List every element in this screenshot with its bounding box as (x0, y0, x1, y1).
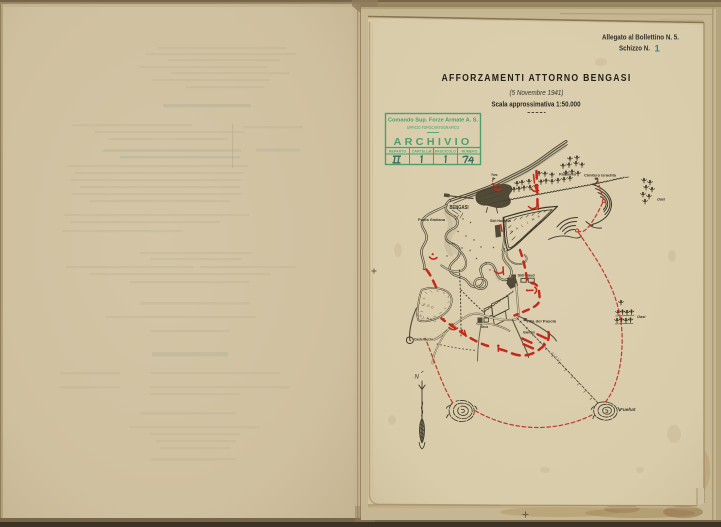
svg-text:Comando Sup. Forze Armate A. S: Comando Sup. Forze Armate A. S. (388, 118, 478, 124)
svg-text:UFFICIO TOPOCARTOGRAFICO: UFFICIO TOPOCARTOGRAFICO (407, 125, 460, 130)
svg-text:AFFORZAMENTI ATTORNO BENGASI: AFFORZAMENTI ATTORNO BENGASI (442, 73, 632, 84)
svg-text:G: G (427, 304, 430, 308)
svg-text:Fuehat: Fuehat (620, 407, 636, 412)
svg-text:Scala approssimativa 1:50.000: Scala approssimativa 1:50.000 (492, 100, 581, 109)
svg-text:O: O (431, 306, 434, 310)
svg-text:O: O (434, 319, 437, 323)
svg-text:Giardini: Giardini (523, 331, 535, 335)
svg-text:N: N (415, 375, 420, 381)
svg-text:L: L (419, 301, 421, 305)
svg-text:T: T (430, 318, 432, 322)
svg-text:Oasi: Oasi (637, 315, 646, 319)
svg-text:Faro: Faro (492, 173, 498, 177)
svg-text:NUMERO: NUMERO (462, 150, 478, 154)
svg-text:Villa del Pascià: Villa del Pascià (526, 320, 557, 324)
svg-text:FASCICOLO: FASCICOLO (435, 150, 456, 154)
svg-text:Sidi Hussein: Sidi Hussein (490, 219, 512, 223)
svg-text:(5 Novembre 1941): (5 Novembre 1941) (510, 88, 564, 97)
svg-text:Punta Giuliana: Punta Giuliana (418, 218, 446, 222)
svg-text:Cimitero israelita: Cimitero israelita (584, 173, 616, 177)
svg-text:Schizzo N.: Schizzo N. (619, 44, 650, 53)
svg-text:L: L (423, 315, 425, 319)
svg-text:ARCHIVIO: ARCHIVIO (394, 137, 473, 148)
svg-text:1: 1 (655, 44, 661, 55)
svg-text:Oasi: Oasi (657, 198, 666, 202)
svg-text:REPARTO: REPARTO (389, 150, 406, 154)
svg-text:Castellaccio: Castellaccio (414, 337, 434, 341)
svg-text:Allegato al Bollettino N. 5.: Allegato al Bollettino N. 5. (602, 33, 679, 42)
svg-text:Berca: Berca (481, 325, 488, 329)
